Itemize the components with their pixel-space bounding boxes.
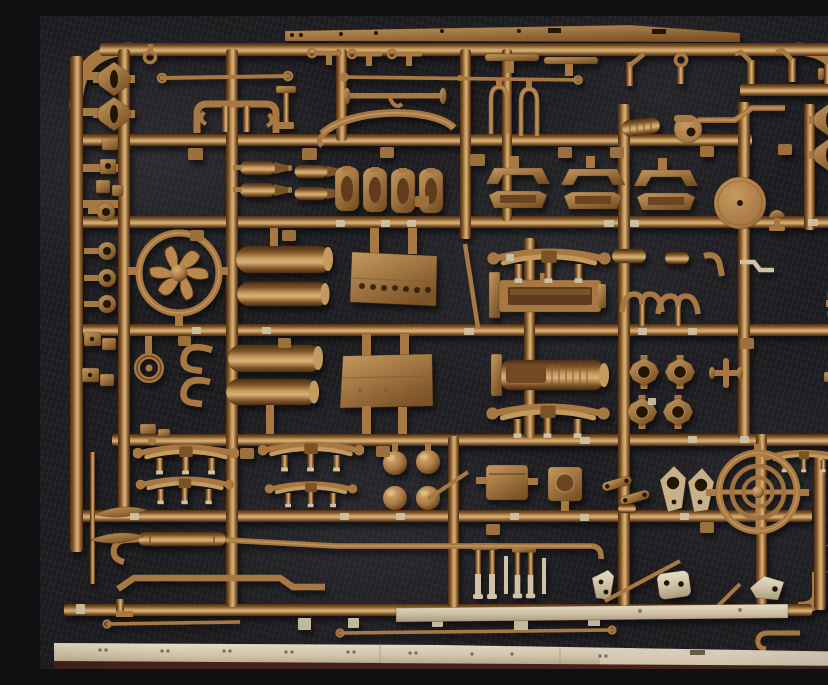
axle-rod-part (344, 88, 447, 106)
t-pin-part (818, 64, 828, 84)
pulley-wheel-part (137, 336, 161, 380)
clevis-fork-part (521, 80, 537, 136)
sprue-illustration (40, 16, 828, 669)
jogged-bar-part (118, 578, 325, 589)
cylinder-ibeam-part (491, 354, 609, 396)
diamond-hub-plate (665, 355, 695, 389)
sprue-photo (40, 16, 828, 669)
front-fork-parts (472, 543, 546, 599)
keyhole-eyelet-parts (84, 242, 116, 313)
j-hook-pipe-part (758, 633, 800, 649)
ball-head-parts (383, 442, 440, 510)
water-pump-part (674, 115, 702, 143)
diamond-hub-plate (663, 395, 693, 429)
leaf-spring (137, 478, 233, 504)
valve-lever-parts (626, 54, 687, 86)
cross-axle-part (709, 358, 743, 388)
leaf-spring (259, 443, 363, 471)
flat-t-bar-parts (485, 54, 598, 76)
eyelet-link-row (308, 49, 422, 66)
tie-rod-with-eyelets-left (158, 72, 292, 82)
shell-body-parts (233, 161, 343, 200)
leaf-spring (266, 483, 356, 507)
handlebar-horn-parts (622, 294, 698, 326)
tow-hook-parts (183, 347, 212, 404)
small-right-edge-parts (824, 240, 828, 453)
kite-plate-parts (660, 466, 714, 512)
small-bracket-parts-left (88, 138, 123, 221)
thin-tie-rods-bottom (104, 621, 616, 637)
road-wheel-disc (714, 177, 766, 229)
gearbox-block-b (548, 467, 582, 511)
leaf-spring (488, 406, 608, 438)
leaf-spring (134, 446, 238, 474)
chassis-rail-flat-bar (285, 25, 740, 42)
gearbox-block-a (476, 465, 538, 500)
diamond-hub-plate (629, 355, 659, 389)
louvred-panel-upper (350, 228, 437, 306)
riveted-panel-lower (340, 334, 433, 434)
hatch-frame-parts (486, 156, 698, 210)
cooling-fan-part (128, 233, 228, 326)
